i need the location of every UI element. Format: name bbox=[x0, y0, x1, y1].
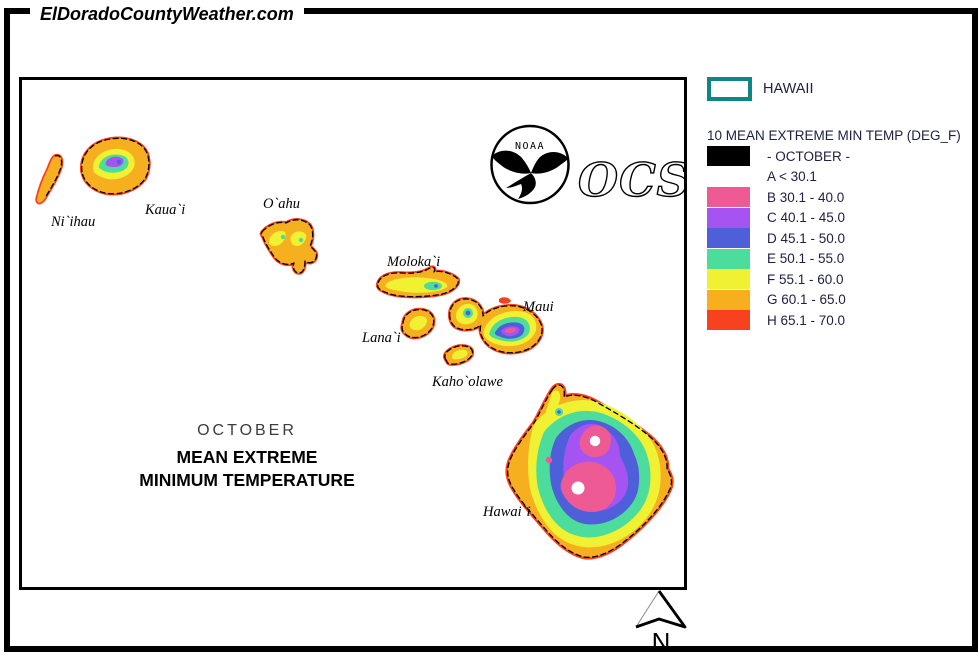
island-niihau-shape bbox=[37, 156, 62, 203]
legend-row: C 40.1 - 45.0 bbox=[707, 208, 973, 229]
legend-row-label: - OCTOBER - bbox=[767, 149, 850, 164]
legend-row-label: C 40.1 - 45.0 bbox=[767, 210, 845, 225]
island-kahoolawe-shape bbox=[445, 346, 473, 364]
legend: HAWAII 10 MEAN EXTREME MIN TEMP (DEG_F) … bbox=[707, 76, 973, 331]
island-label-hawaii: Hawai`i bbox=[483, 504, 531, 521]
island-molokai-shape bbox=[378, 267, 459, 296]
hawaii-region-swatch bbox=[707, 77, 752, 101]
legend-row: F 55.1 - 60.0 bbox=[707, 269, 973, 290]
legend-row: E 50.1 - 55.0 bbox=[707, 249, 973, 270]
legend-row-label: H 65.1 - 70.0 bbox=[767, 313, 845, 328]
svg-text:NOAA: NOAA bbox=[515, 141, 545, 152]
legend-region-row: HAWAII bbox=[707, 76, 973, 102]
legend-swatch bbox=[707, 249, 750, 269]
map-frame: NOAA OCS Ni`ihau Kaua`i O`ahu Moloka`i L… bbox=[19, 77, 687, 590]
island-label-maui: Maui bbox=[523, 299, 554, 316]
legend-row: H 65.1 - 70.0 bbox=[707, 310, 973, 331]
caption-line2: MEAN EXTREME bbox=[82, 446, 412, 469]
legend-row: G 60.1 - 65.0 bbox=[707, 290, 973, 311]
legend-row: D 45.1 - 50.0 bbox=[707, 228, 973, 249]
legend-swatch bbox=[707, 146, 750, 166]
island-label-niihau: Ni`ihau bbox=[51, 214, 95, 231]
legend-row-label: A < 30.1 bbox=[767, 169, 817, 184]
island-lanai-shape bbox=[402, 310, 434, 338]
hawaii-region-label: HAWAII bbox=[763, 81, 813, 97]
weather-map-page: ElDoradoCountyWeather.com bbox=[0, 0, 980, 659]
island-hawaii-shape bbox=[508, 385, 672, 557]
legend-row: B 30.1 - 40.0 bbox=[707, 187, 973, 208]
legend-swatch bbox=[707, 228, 750, 248]
island-label-kahoolawe: Kaho`olawe bbox=[432, 374, 503, 391]
north-arrow-icon: N bbox=[625, 583, 697, 655]
island-label-molokai: Moloka`i bbox=[387, 254, 440, 271]
islands-map-graphic: NOAA OCS bbox=[22, 80, 684, 587]
legend-title: 10 MEAN EXTREME MIN TEMP (DEG_F) bbox=[707, 128, 973, 143]
svg-text:N: N bbox=[652, 627, 671, 655]
legend-swatch bbox=[707, 208, 750, 228]
legend-swatch bbox=[707, 269, 750, 289]
island-label-lanai: Lana`i bbox=[362, 330, 401, 347]
caption-month: OCTOBER bbox=[82, 422, 412, 440]
legend-row-label: F 55.1 - 60.0 bbox=[767, 272, 844, 287]
legend-row-label: B 30.1 - 40.0 bbox=[767, 190, 844, 205]
legend-row-label: G 60.1 - 65.0 bbox=[767, 292, 846, 307]
legend-swatch bbox=[707, 310, 750, 330]
island-label-oahu: O`ahu bbox=[263, 196, 300, 213]
legend-rows: - OCTOBER - A < 30.1 B 30.1 - 40.0 C 40.… bbox=[707, 146, 973, 331]
legend-row: A < 30.1 bbox=[707, 167, 973, 188]
legend-row-label: D 45.1 - 50.0 bbox=[767, 231, 845, 246]
map-caption: OCTOBER MEAN EXTREME MINIMUM TEMPERATURE bbox=[82, 422, 412, 492]
legend-swatch bbox=[707, 167, 750, 187]
caption-line3: MINIMUM TEMPERATURE bbox=[82, 469, 412, 492]
ocs-logo-text: OCS bbox=[578, 153, 684, 207]
island-oahu-shape bbox=[261, 220, 316, 273]
legend-row: - OCTOBER - bbox=[707, 146, 973, 167]
island-label-kauai: Kaua`i bbox=[145, 202, 185, 219]
legend-row-label: E 50.1 - 55.0 bbox=[767, 251, 844, 266]
island-kauai-shape bbox=[82, 138, 149, 193]
noaa-logo-icon: NOAA bbox=[492, 126, 569, 203]
site-title: ElDoradoCountyWeather.com bbox=[30, 0, 304, 28]
legend-swatch bbox=[707, 290, 750, 310]
legend-swatch bbox=[707, 187, 750, 207]
